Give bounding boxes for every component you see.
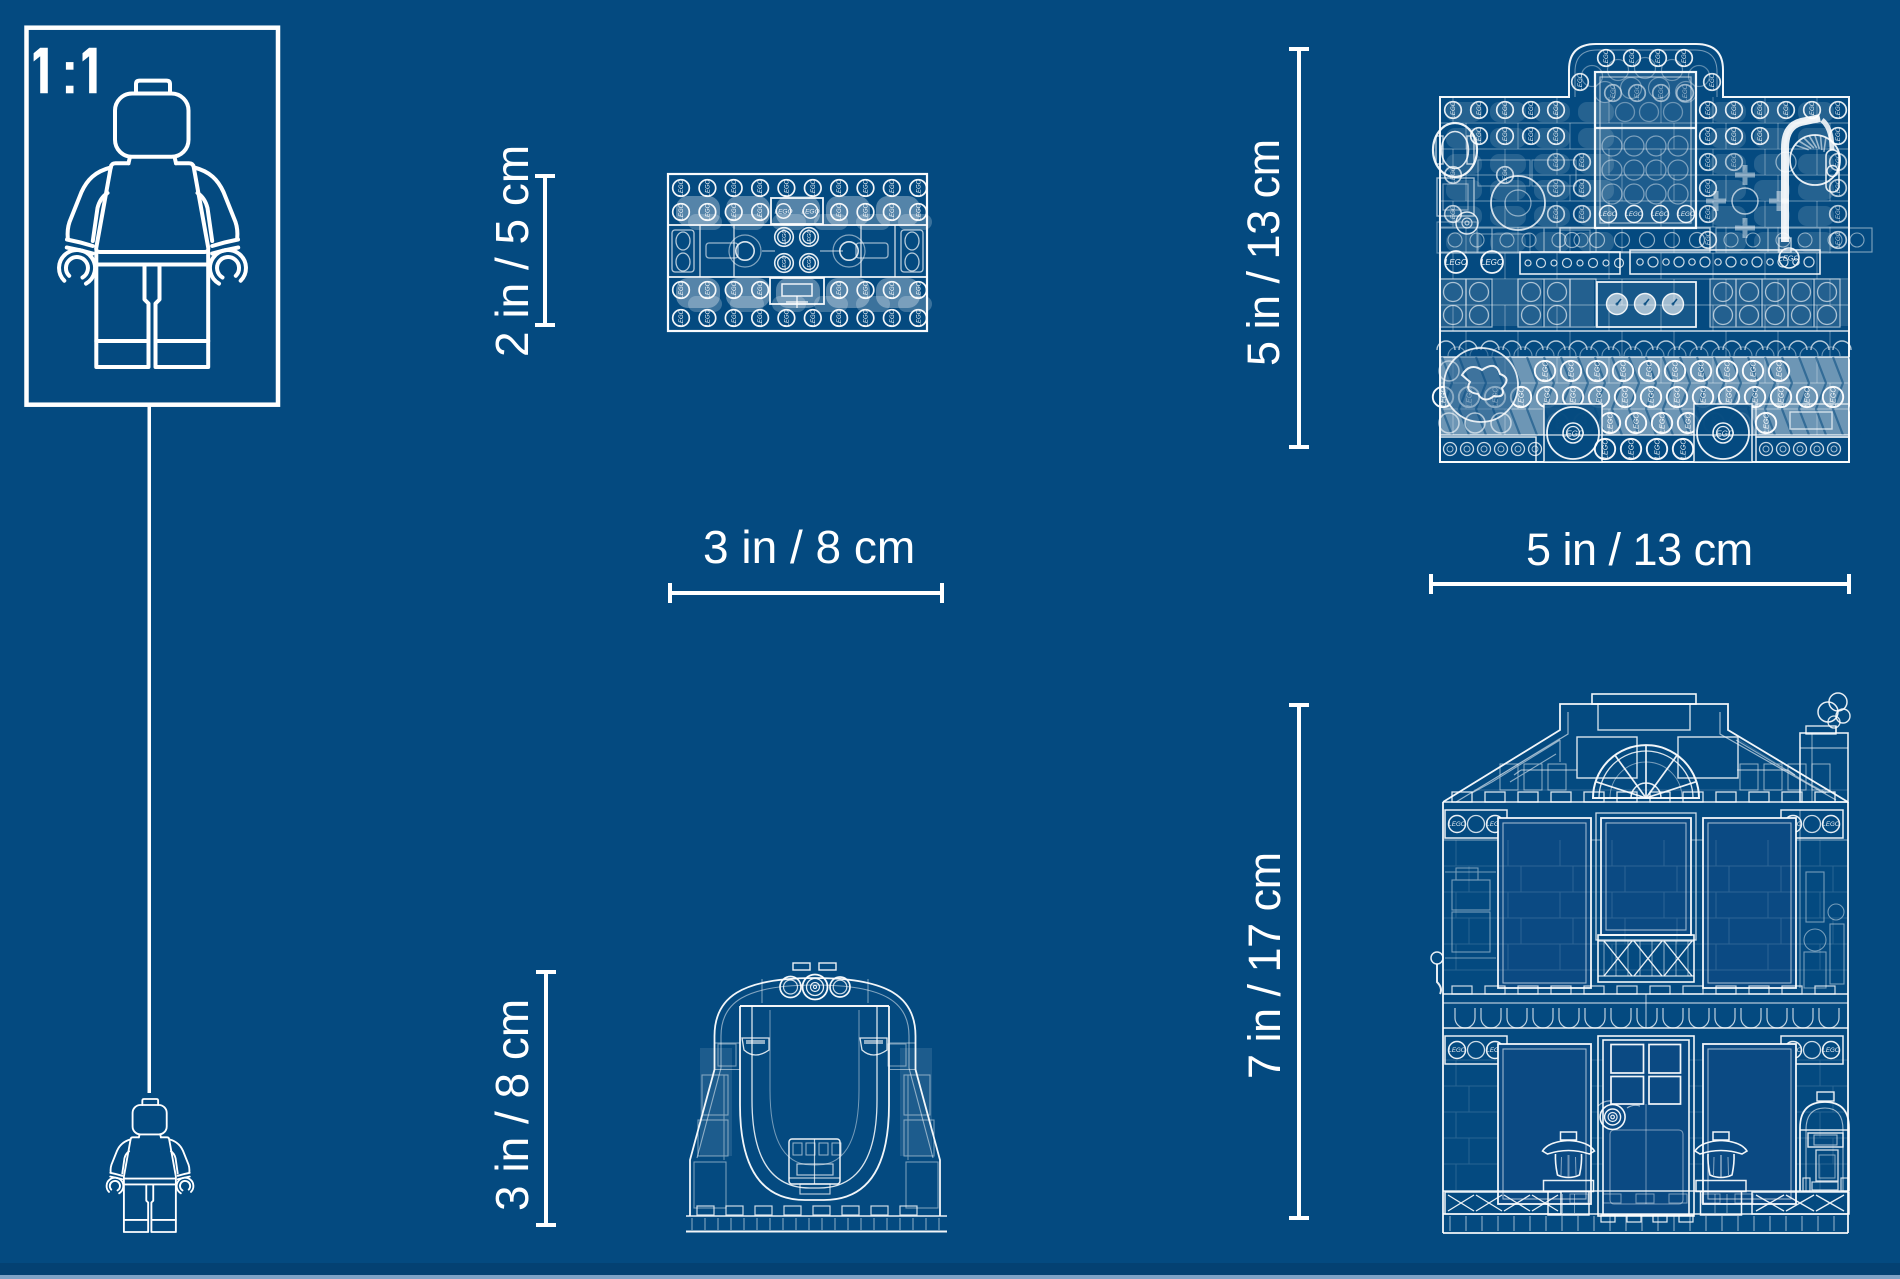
svg-text:LEGO: LEGO xyxy=(732,179,738,196)
svg-text:LEGO: LEGO xyxy=(785,179,791,196)
svg-text:7 in / 17 cm: 7 in / 17 cm xyxy=(1239,852,1290,1079)
svg-text:LEGO: LEGO xyxy=(679,203,685,220)
svg-text:LEGO: LEGO xyxy=(1579,153,1586,170)
svg-text:LEGO: LEGO xyxy=(706,179,712,196)
svg-text:LEGO: LEGO xyxy=(774,208,792,215)
svg-text:LEGO: LEGO xyxy=(1709,73,1716,90)
svg-text:3 in / 8 cm: 3 in / 8 cm xyxy=(703,521,915,573)
svg-text:LEGO: LEGO xyxy=(1822,821,1839,828)
svg-text:LEGO: LEGO xyxy=(1634,84,1641,101)
svg-text:LEGO: LEGO xyxy=(1603,49,1610,66)
svg-text:LEGO: LEGO xyxy=(1476,127,1483,144)
svg-text:LEGO: LEGO xyxy=(1528,101,1535,118)
svg-text:LEGO: LEGO xyxy=(890,281,896,298)
svg-text:LEGO: LEGO xyxy=(916,179,922,196)
svg-text:LEGO: LEGO xyxy=(1606,413,1615,433)
svg-text:LEGO: LEGO xyxy=(837,281,843,298)
svg-text:LEGO: LEGO xyxy=(1553,179,1560,196)
svg-text:LEGO: LEGO xyxy=(1723,361,1732,381)
svg-text:LEGO: LEGO xyxy=(837,179,843,196)
svg-text:LEGO: LEGO xyxy=(837,203,843,220)
svg-text:LEGO: LEGO xyxy=(1835,179,1842,196)
svg-text:LEGO: LEGO xyxy=(1562,430,1584,439)
svg-text:LEGO: LEGO xyxy=(890,203,896,220)
svg-text:LEGO: LEGO xyxy=(1541,361,1550,381)
svg-text:LEGO: LEGO xyxy=(1671,361,1680,381)
svg-text:LEGO: LEGO xyxy=(1445,258,1467,267)
svg-text:LEGO: LEGO xyxy=(801,208,819,215)
svg-text:LEGO: LEGO xyxy=(732,309,738,326)
svg-text:LEGO: LEGO xyxy=(1610,84,1617,101)
svg-text:LEGO: LEGO xyxy=(1579,205,1586,222)
svg-text:LEGO: LEGO xyxy=(1673,387,1682,407)
svg-text:LEGO: LEGO xyxy=(679,179,685,196)
svg-text:LEGO: LEGO xyxy=(1502,101,1509,118)
svg-text:LEGO: LEGO xyxy=(1599,211,1616,218)
svg-text:LEGO: LEGO xyxy=(811,179,817,196)
svg-text:LEGO: LEGO xyxy=(1681,49,1688,66)
svg-text:LEGO: LEGO xyxy=(864,179,870,196)
svg-text:LEGO: LEGO xyxy=(1684,413,1693,433)
svg-text:LEGO: LEGO xyxy=(706,309,712,326)
svg-text:LEGO: LEGO xyxy=(1577,73,1584,90)
svg-text:LEGO: LEGO xyxy=(732,281,738,298)
svg-text:LEGO: LEGO xyxy=(1705,101,1712,118)
svg-text:LEGO: LEGO xyxy=(1647,387,1656,407)
svg-text:LEGO: LEGO xyxy=(1705,153,1712,170)
svg-text:LEGO: LEGO xyxy=(1783,101,1790,118)
svg-text:LEGO: LEGO xyxy=(1749,361,1758,381)
svg-text:LEGO: LEGO xyxy=(1632,413,1641,433)
svg-text:LEGO: LEGO xyxy=(864,281,870,298)
svg-text:LEGO: LEGO xyxy=(1731,101,1738,118)
svg-text:LEGO: LEGO xyxy=(1593,361,1602,381)
svg-text:LEGO: LEGO xyxy=(1567,361,1576,381)
svg-text:LEGO: LEGO xyxy=(1625,211,1642,218)
svg-text:LEGO: LEGO xyxy=(811,309,817,326)
svg-text:LEGO: LEGO xyxy=(785,309,791,326)
svg-text:LEGO: LEGO xyxy=(807,229,813,245)
svg-text:LEGO: LEGO xyxy=(782,229,788,245)
svg-text:LEGO: LEGO xyxy=(916,203,922,220)
svg-text:LEGO: LEGO xyxy=(1705,231,1712,248)
svg-text:5 in / 13 cm: 5 in / 13 cm xyxy=(1526,524,1753,575)
svg-text:2 in / 5 cm: 2 in / 5 cm xyxy=(486,145,538,357)
svg-text:LEGO: LEGO xyxy=(1627,439,1636,459)
svg-text:LEGO: LEGO xyxy=(1481,258,1503,267)
svg-text:LEGO: LEGO xyxy=(1775,361,1784,381)
svg-text:LEGO: LEGO xyxy=(837,309,843,326)
svg-text:LEGO: LEGO xyxy=(1658,84,1665,101)
svg-text:LEGO: LEGO xyxy=(1677,211,1694,218)
svg-text:LEGO: LEGO xyxy=(1528,127,1535,144)
svg-text:LEGO: LEGO xyxy=(916,281,922,298)
svg-text:LEGO: LEGO xyxy=(864,309,870,326)
svg-text:LEGO: LEGO xyxy=(1835,205,1842,222)
svg-text:LEGO: LEGO xyxy=(1601,439,1610,459)
svg-text:LEGO: LEGO xyxy=(1476,101,1483,118)
svg-text:LEGO: LEGO xyxy=(1731,153,1738,170)
svg-text:LEGO: LEGO xyxy=(758,309,764,326)
svg-text:LEGO: LEGO xyxy=(1705,127,1712,144)
svg-text:LEGO: LEGO xyxy=(758,179,764,196)
svg-text:LEGO: LEGO xyxy=(1731,127,1738,144)
svg-text:LEGO: LEGO xyxy=(1762,413,1771,433)
svg-text:LEGO: LEGO xyxy=(706,281,712,298)
svg-text:5 in / 13 cm: 5 in / 13 cm xyxy=(1238,139,1289,366)
svg-text:LEGO: LEGO xyxy=(1835,101,1842,118)
svg-text:LEGO: LEGO xyxy=(1450,101,1457,118)
svg-text:LEGO: LEGO xyxy=(1658,413,1667,433)
svg-text:LEGO: LEGO xyxy=(1629,49,1636,66)
svg-text:LEGO: LEGO xyxy=(679,281,685,298)
svg-text:LEGO: LEGO xyxy=(1553,127,1560,144)
svg-text:LEGO: LEGO xyxy=(679,309,685,326)
svg-text:LEGO: LEGO xyxy=(1502,127,1509,144)
svg-text:LEGO: LEGO xyxy=(1682,84,1689,101)
svg-text:LEGO: LEGO xyxy=(732,203,738,220)
svg-text:LEGO: LEGO xyxy=(864,203,870,220)
svg-text:LEGO: LEGO xyxy=(916,309,922,326)
svg-text:LEGO: LEGO xyxy=(1553,101,1560,118)
svg-text:LEGO: LEGO xyxy=(1757,101,1764,118)
svg-text:LEGO: LEGO xyxy=(1651,211,1668,218)
svg-text:LEGO: LEGO xyxy=(1705,179,1712,196)
svg-text:LEGO: LEGO xyxy=(1655,49,1662,66)
svg-text:LEGO: LEGO xyxy=(782,255,788,271)
svg-text:LEGO: LEGO xyxy=(890,309,896,326)
svg-text:LEGO: LEGO xyxy=(1712,430,1734,439)
svg-text:LEGO: LEGO xyxy=(1705,205,1712,222)
svg-text:LEGO: LEGO xyxy=(1757,127,1764,144)
svg-text:LEGO: LEGO xyxy=(1779,254,1800,263)
svg-text:LEGO: LEGO xyxy=(758,281,764,298)
svg-text:LEGO: LEGO xyxy=(1645,361,1654,381)
svg-text:LEGO: LEGO xyxy=(1619,361,1628,381)
svg-text:LEGO: LEGO xyxy=(1653,439,1662,459)
svg-text:LEGO: LEGO xyxy=(706,203,712,220)
svg-text:LEGO: LEGO xyxy=(758,203,764,220)
svg-text:LEGO: LEGO xyxy=(1448,821,1465,828)
svg-text:LEGO: LEGO xyxy=(1697,361,1706,381)
svg-text:LEGO: LEGO xyxy=(1579,179,1586,196)
svg-text:LEGO: LEGO xyxy=(1448,1047,1465,1054)
svg-text:LEGO: LEGO xyxy=(1553,153,1560,170)
svg-text:LEGO: LEGO xyxy=(890,179,896,196)
svg-text:LEGO: LEGO xyxy=(1822,1047,1839,1054)
svg-text:3 in / 8 cm: 3 in / 8 cm xyxy=(486,999,538,1211)
svg-text:LEGO: LEGO xyxy=(1835,127,1842,144)
svg-text:LEGO: LEGO xyxy=(1553,205,1560,222)
svg-text:LEGO: LEGO xyxy=(1679,439,1688,459)
svg-text:LEGO: LEGO xyxy=(807,255,813,271)
svg-text:LEGO: LEGO xyxy=(1621,387,1630,407)
